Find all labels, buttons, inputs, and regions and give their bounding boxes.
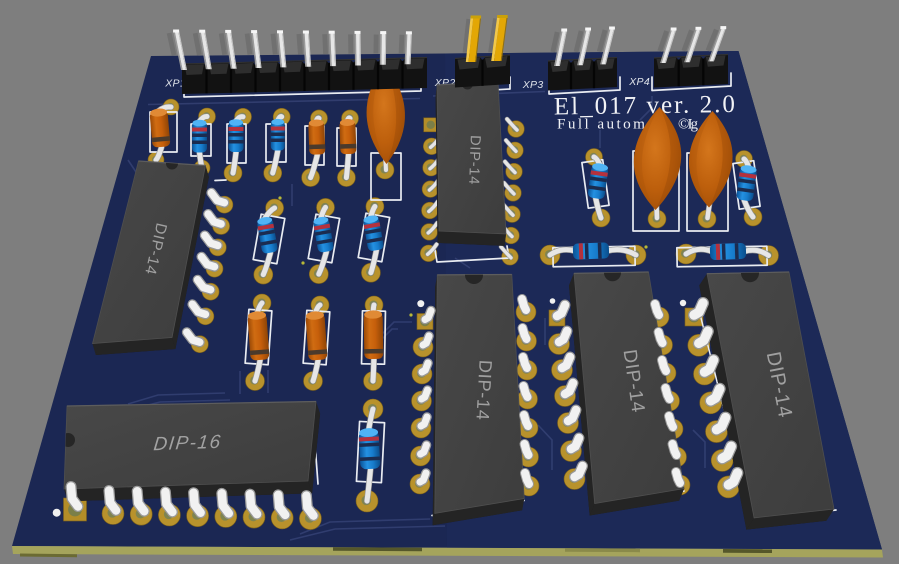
svg-text:XP3: XP3 [522, 79, 544, 91]
svg-text:XP4: XP4 [628, 76, 650, 88]
svg-text:DIP-14: DIP-14 [465, 135, 483, 185]
svg-text:©Ig: ©Ig [678, 117, 699, 133]
svg-text:DIP-16: DIP-16 [152, 432, 222, 455]
svg-text:DIP-14: DIP-14 [472, 359, 495, 421]
